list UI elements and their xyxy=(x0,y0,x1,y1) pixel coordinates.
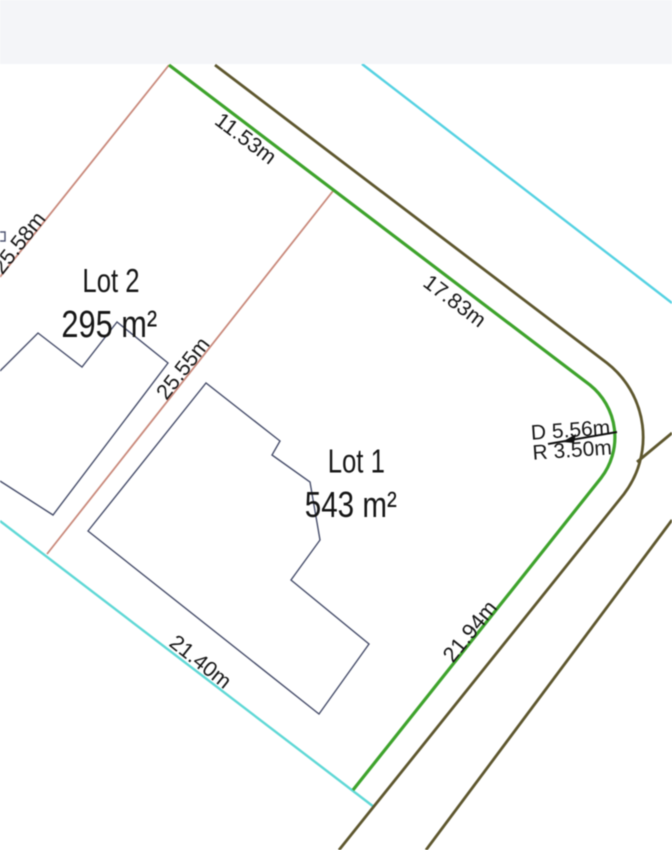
svg-text:Lot 1: Lot 1 xyxy=(328,444,385,481)
svg-text:295 m²: 295 m² xyxy=(61,304,157,346)
svg-text:Lot 2: Lot 2 xyxy=(82,263,139,300)
svg-text:543 m²: 543 m² xyxy=(305,485,397,526)
